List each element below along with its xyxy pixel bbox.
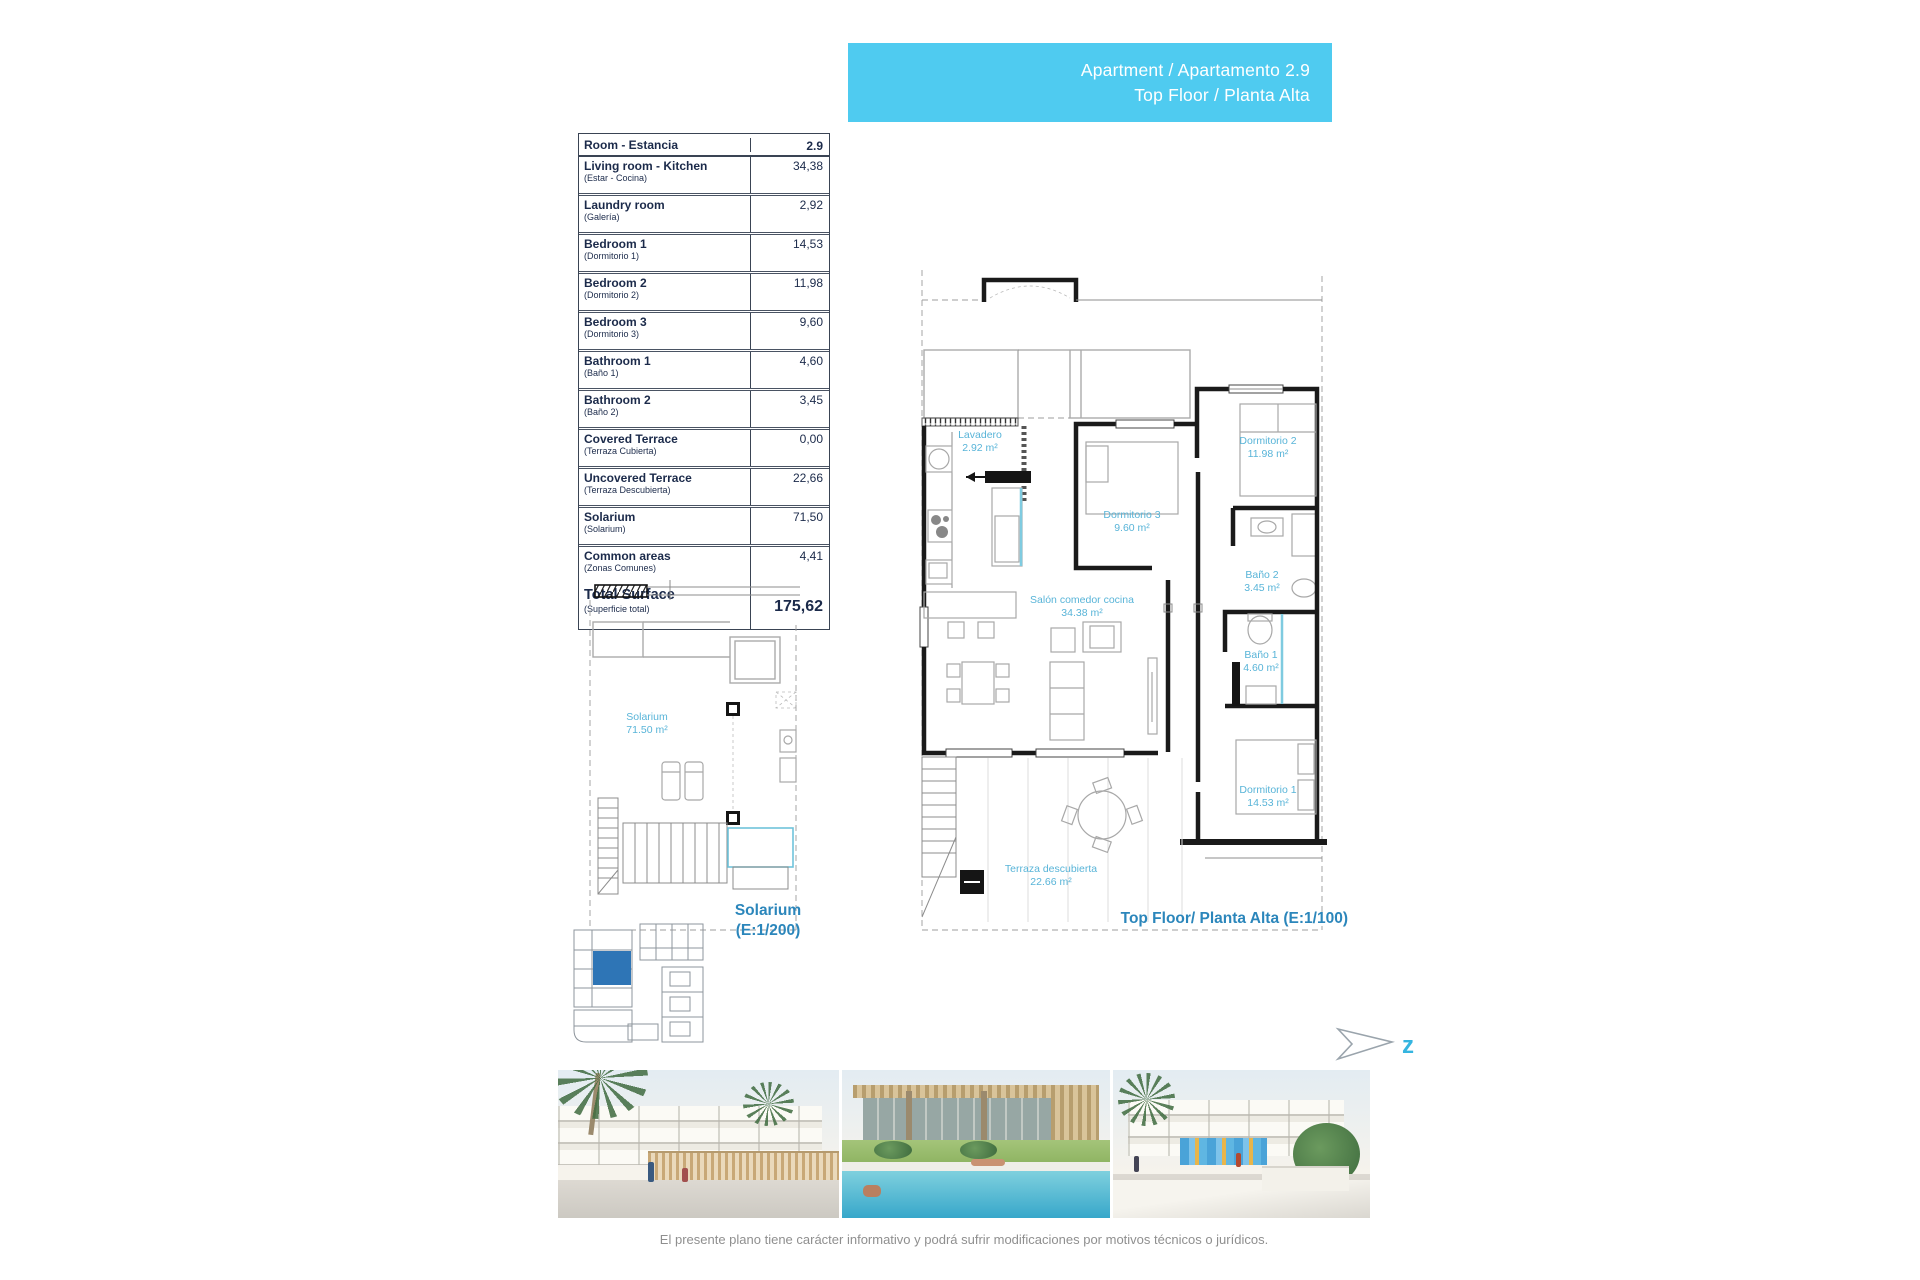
table-row: Bedroom 2 (Dormitorio 2) 11,98 (579, 274, 829, 313)
room-subname: (Dormitorio 1) (584, 251, 748, 262)
surface-table-body: Living room - Kitchen (Estar - Cocina) 3… (579, 157, 829, 583)
promenade (558, 1180, 839, 1218)
room-subname: (Estar - Cocina) (584, 173, 748, 184)
room-area-value: 14,53 (751, 235, 829, 271)
solarium-plan: Solarium 71.50 m² (583, 580, 823, 950)
plan-sheet: Apartment / Apartamento 2.9 Top Floor / … (0, 0, 1920, 1280)
table-row: Common areas (Zonas Comunes) 4,41 (579, 547, 829, 583)
gym-pavilion (863, 1098, 1051, 1139)
room-label-dormitorio2: Dormitorio 2 (1239, 435, 1296, 447)
room-area-dormitorio3: 9.60 m² (1114, 522, 1150, 534)
room-subname: (Terraza Cubierta) (584, 446, 748, 457)
header-unit-col: 2.9 (751, 137, 829, 153)
main-floor-plan: Lavadero 2.92 m² Dormitorio 2 11.98 m² D… (918, 262, 1338, 952)
room-area-value: 9,60 (751, 313, 829, 349)
bush (960, 1141, 998, 1159)
room-area-value: 11,98 (751, 274, 829, 310)
room-name: Bedroom 3 (584, 315, 748, 329)
sunbather (971, 1159, 1005, 1166)
table-row: Bathroom 1 (Baño 1) 4,60 (579, 352, 829, 391)
table-row: Solarium (Solarium) 71,50 (579, 508, 829, 547)
room-label-terraza: Terraza descubierta (1005, 863, 1097, 875)
room-area-value: 4,41 (751, 547, 829, 583)
room-subname: (Terraza Descubierta) (584, 485, 748, 496)
room-subname: (Dormitorio 3) (584, 329, 748, 340)
table-row: Bedroom 3 (Dormitorio 3) 9,60 (579, 313, 829, 352)
bush (874, 1141, 912, 1159)
solarium-room-area: 71.50 m² (626, 724, 668, 736)
room-area-terraza: 22.66 m² (1030, 876, 1072, 888)
header-room-col: Room - Estancia (579, 138, 751, 152)
table-row: Bedroom 1 (Dormitorio 1) 14,53 (579, 235, 829, 274)
table-row: Bathroom 2 (Baño 2) 3,45 (579, 391, 829, 430)
room-subname: (Solarium) (584, 524, 748, 535)
surface-table: Room - Estancia 2.9 Living room - Kitche… (578, 133, 830, 630)
title-banner: Apartment / Apartamento 2.9 Top Floor / … (848, 43, 1332, 122)
room-area-value: 22,66 (751, 469, 829, 505)
room-area-bano1: 4.60 m² (1243, 662, 1279, 674)
north-arrow: z (1330, 1015, 1430, 1067)
room-area-value: 4,60 (751, 352, 829, 388)
apartment-title: Apartment / Apartamento 2.9 (1081, 58, 1310, 83)
room-subname: (Baño 1) (584, 368, 748, 379)
room-name: Living room - Kitchen (584, 159, 748, 173)
room-area-bano2: 3.45 m² (1244, 582, 1280, 594)
playground (1180, 1138, 1267, 1165)
room-subname: (Galería) (584, 212, 748, 223)
table-row: Covered Terrace (Terraza Cubierta) 0,00 (579, 430, 829, 469)
room-label-lavadero: Lavadero (958, 429, 1002, 441)
room-area-dormitorio2: 11.98 m² (1248, 448, 1289, 460)
key-plan (570, 912, 705, 1047)
room-area-value: 71,50 (751, 508, 829, 544)
room-name: Laundry room (584, 198, 748, 212)
swimmer (863, 1185, 881, 1197)
room-area-salon: 34.38 m² (1061, 607, 1103, 619)
render-photo-playground (1113, 1070, 1370, 1218)
keyplan-highlight-unit (593, 951, 631, 985)
floor-title: Top Floor / Planta Alta (1134, 83, 1310, 108)
room-area-value: 3,45 (751, 391, 829, 427)
room-name: Common areas (584, 549, 748, 563)
palm-tree (743, 1082, 794, 1126)
room-area-value: 34,38 (751, 157, 829, 193)
room-label-bano2: Baño 2 (1245, 569, 1278, 581)
room-area-value: 0,00 (751, 430, 829, 466)
table-row: Living room - Kitchen (Estar - Cocina) 3… (579, 157, 829, 196)
room-subname: (Zonas Comunes) (584, 563, 748, 574)
room-area-lavadero: 2.92 m² (962, 442, 998, 454)
room-name: Bathroom 2 (584, 393, 748, 407)
surface-table-header: Room - Estancia 2.9 (579, 134, 829, 157)
room-name: Bedroom 2 (584, 276, 748, 290)
pool (842, 1171, 1110, 1218)
palm-tree (1118, 1073, 1175, 1126)
main-plan-caption: Top Floor/ Planta Alta (E:1/100) (1000, 910, 1348, 928)
table-row: Laundry room (Galería) 2,92 (579, 196, 829, 235)
person (682, 1168, 688, 1182)
room-name: Solarium (584, 510, 748, 524)
room-subname: (Baño 2) (584, 407, 748, 418)
planter-wall (1262, 1166, 1349, 1192)
north-arrow-icon (1338, 1029, 1392, 1059)
room-name: Uncovered Terrace (584, 471, 748, 485)
table-row: Uncovered Terrace (Terraza Descubierta) … (579, 469, 829, 508)
person (648, 1162, 654, 1182)
render-photo-building (558, 1070, 839, 1218)
person (1134, 1156, 1139, 1172)
render-photo-pool (842, 1070, 1110, 1218)
room-name: Bathroom 1 (584, 354, 748, 368)
room-label-bano1: Baño 1 (1244, 649, 1277, 661)
room-label-dormitorio3: Dormitorio 3 (1103, 509, 1160, 521)
room-area-dormitorio1: 14.53 m² (1247, 797, 1289, 809)
room-label-salon: Salón comedor cocina (1030, 594, 1134, 606)
disclaimer-text: El presente plano tiene carácter informa… (558, 1232, 1370, 1247)
room-label-dormitorio1: Dormitorio 1 (1239, 784, 1296, 796)
room-subname: (Dormitorio 2) (584, 290, 748, 301)
room-name: Bedroom 1 (584, 237, 748, 251)
pergola-roof (853, 1085, 1100, 1098)
north-letter: z (1402, 1032, 1414, 1059)
solarium-room-label: Solarium (626, 711, 668, 723)
person (1236, 1153, 1241, 1167)
solarium-caption: Solarium (E:1/200) (693, 901, 843, 941)
room-area-value: 2,92 (751, 196, 829, 232)
room-name: Covered Terrace (584, 432, 748, 446)
